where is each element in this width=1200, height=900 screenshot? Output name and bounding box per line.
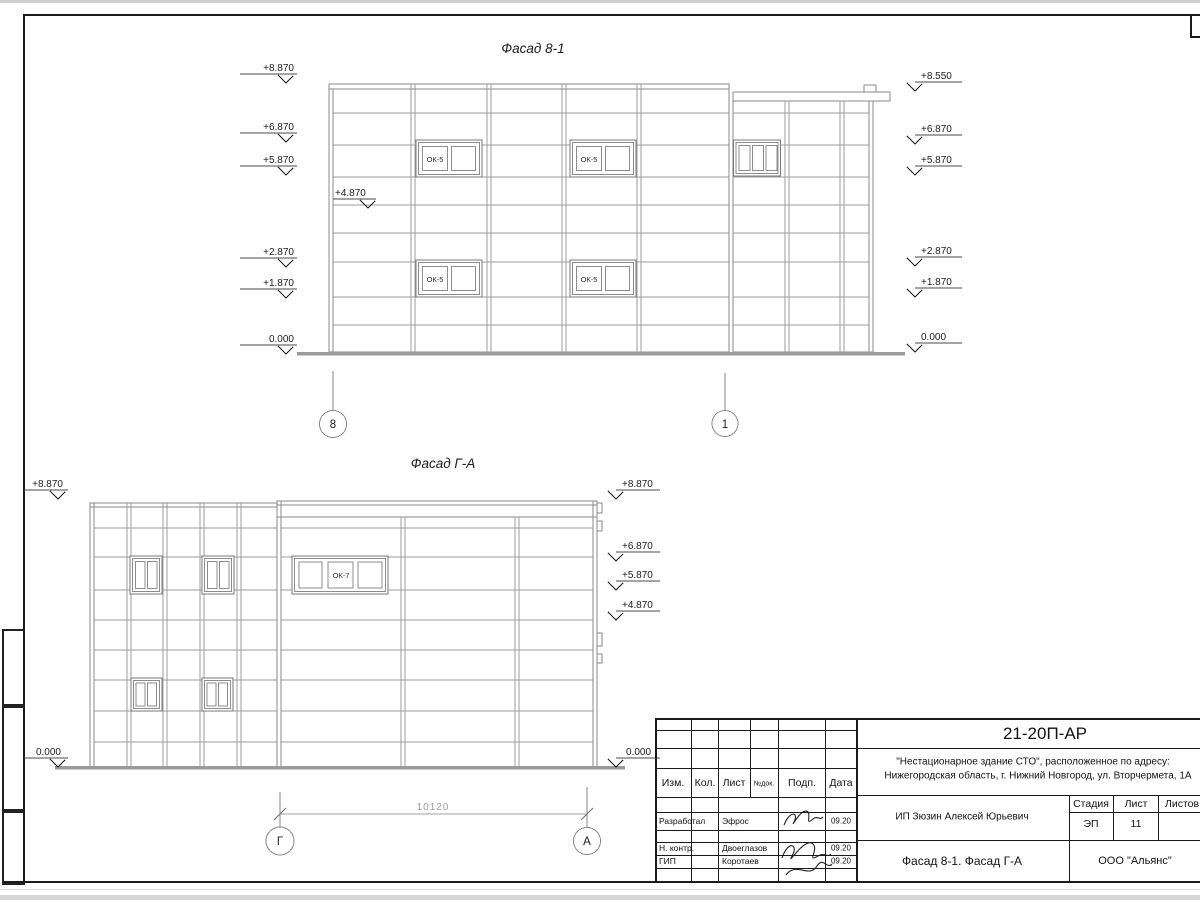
sheet-title: Фасад 8-1. Фасад Г-А <box>902 854 1022 868</box>
svg-text:0.000: 0.000 <box>921 332 946 343</box>
title-block: Изм. Кол. Лист №док. Подп. Дата Разработ… <box>655 718 1200 883</box>
drawing-sheet: Фасад 8-1 <box>0 0 1200 900</box>
facade2-elevation-marks-right: +8.870 +6.870 +5.870 +4.870 0.000 <box>608 479 660 767</box>
svg-text:+4.870: +4.870 <box>335 188 366 199</box>
window-label: ОК-5 <box>427 275 444 284</box>
facade1-panel-lines-main <box>333 113 729 325</box>
company: ООО "Альянс" <box>1098 855 1172 867</box>
col-podp: Подп. <box>788 777 816 789</box>
project-line2: Нижегородская область, г. Нижний Новгоро… <box>884 771 1191 782</box>
row-date: 09.20 <box>831 817 851 826</box>
client: ИП Зюзин Алексей Юрьевич <box>895 812 1028 823</box>
axis-label-1: 1 <box>722 419 728 431</box>
facade2-elevation-marks-left: +8.870 0.000 <box>24 479 68 767</box>
row-date: 09.20 <box>831 857 851 866</box>
facade1-building-outline <box>329 84 890 352</box>
facade2-dimension: 10120 <box>274 787 593 827</box>
col-kol: Кол. <box>695 777 716 789</box>
facade1-axes: 8 1 <box>320 371 739 438</box>
facade-8-1: Фасад 8-1 <box>240 41 962 438</box>
svg-text:+5.870: +5.870 <box>263 155 294 166</box>
ground-line-1 <box>297 352 905 356</box>
doc-number: 21-20П-АР <box>1003 724 1087 744</box>
svg-text:+8.550: +8.550 <box>921 71 952 82</box>
stage-value: ЭП <box>1083 818 1098 830</box>
listov-label: Листов <box>1165 798 1199 810</box>
ground-line-2 <box>55 766 625 770</box>
svg-text:+5.870: +5.870 <box>622 570 653 581</box>
svg-text:0.000: 0.000 <box>626 747 651 758</box>
facade1-title: Фасад 8-1 <box>501 41 564 56</box>
axis-label-g: Г <box>277 836 284 848</box>
window-label: ОК-7 <box>333 571 350 580</box>
list-value: 11 <box>1131 818 1142 830</box>
row-name: Эфрос <box>722 816 749 826</box>
facade1-elevation-marks-left: +8.870 +6.870 +5.870 +2.870 +1.870 0.000 <box>240 63 297 354</box>
stage-label: Стадия <box>1073 798 1109 810</box>
row-role: Н. контр. <box>659 843 694 853</box>
facade1-elevation-marks-right: +8.550 +6.870 +5.870 +2.870 +1.870 0.000 <box>907 71 962 352</box>
svg-text:+2.870: +2.870 <box>263 247 294 258</box>
window-ok5-lower-2: ОК-5 <box>570 260 636 297</box>
col-izm: Изм. <box>662 777 685 789</box>
svg-text:+8.870: +8.870 <box>263 63 294 74</box>
list-label: Лист <box>1125 798 1148 810</box>
window-3pane <box>734 140 781 176</box>
facade2-pilasters <box>127 503 519 767</box>
svg-text:+6.870: +6.870 <box>263 122 294 133</box>
window-label: ОК-5 <box>581 155 598 164</box>
svg-text:+1.870: +1.870 <box>263 278 294 289</box>
window-ok5-lower-1: ОК-5 <box>416 260 482 297</box>
row-role: Разработал <box>659 816 705 826</box>
window-ok5-upper-1: ОК-5 <box>416 140 482 177</box>
window-small-upper-2 <box>202 556 234 594</box>
facade-g-a: Фасад Г-А <box>24 456 660 855</box>
svg-text:+6.870: +6.870 <box>921 124 952 135</box>
col-ndok: №док. <box>754 781 775 788</box>
window-label: ОК-5 <box>581 275 598 284</box>
row-name: Коротаев <box>722 856 759 866</box>
row-role: ГИП <box>659 856 676 866</box>
axis-label-a: А <box>583 836 591 848</box>
svg-text:0.000: 0.000 <box>269 334 294 345</box>
svg-text:+8.870: +8.870 <box>622 479 653 490</box>
project-line1: "Нестационарное здание СТО", расположенн… <box>896 757 1169 768</box>
window-label: ОК-5 <box>427 155 444 164</box>
svg-text:+6.870: +6.870 <box>622 541 653 552</box>
window-ok5-upper-2: ОК-5 <box>570 140 636 177</box>
axis-label-8: 8 <box>330 419 336 431</box>
svg-text:+5.870: +5.870 <box>921 155 952 166</box>
row-date: 09.20 <box>831 844 851 853</box>
svg-text:+8.870: +8.870 <box>32 479 63 490</box>
svg-text:+2.870: +2.870 <box>921 246 952 257</box>
svg-text:0.000: 0.000 <box>36 747 61 758</box>
col-list: Лист <box>723 777 746 789</box>
window-small-lower-1 <box>131 678 162 711</box>
svg-text:+1.870: +1.870 <box>921 277 952 288</box>
facade1-pilasters <box>411 84 844 352</box>
window-small-lower-2 <box>202 678 233 711</box>
col-data: Дата <box>829 777 852 789</box>
window-small-upper-1 <box>130 556 162 594</box>
dimension-value: 10120 <box>417 802 450 813</box>
svg-text:+4.870: +4.870 <box>622 600 653 611</box>
facade2-title: Фасад Г-А <box>411 456 476 471</box>
window-ok7: ОК-7 <box>292 556 388 594</box>
row-name: Двоеглазов <box>722 843 767 853</box>
facade2-axes: Г А <box>266 827 601 855</box>
